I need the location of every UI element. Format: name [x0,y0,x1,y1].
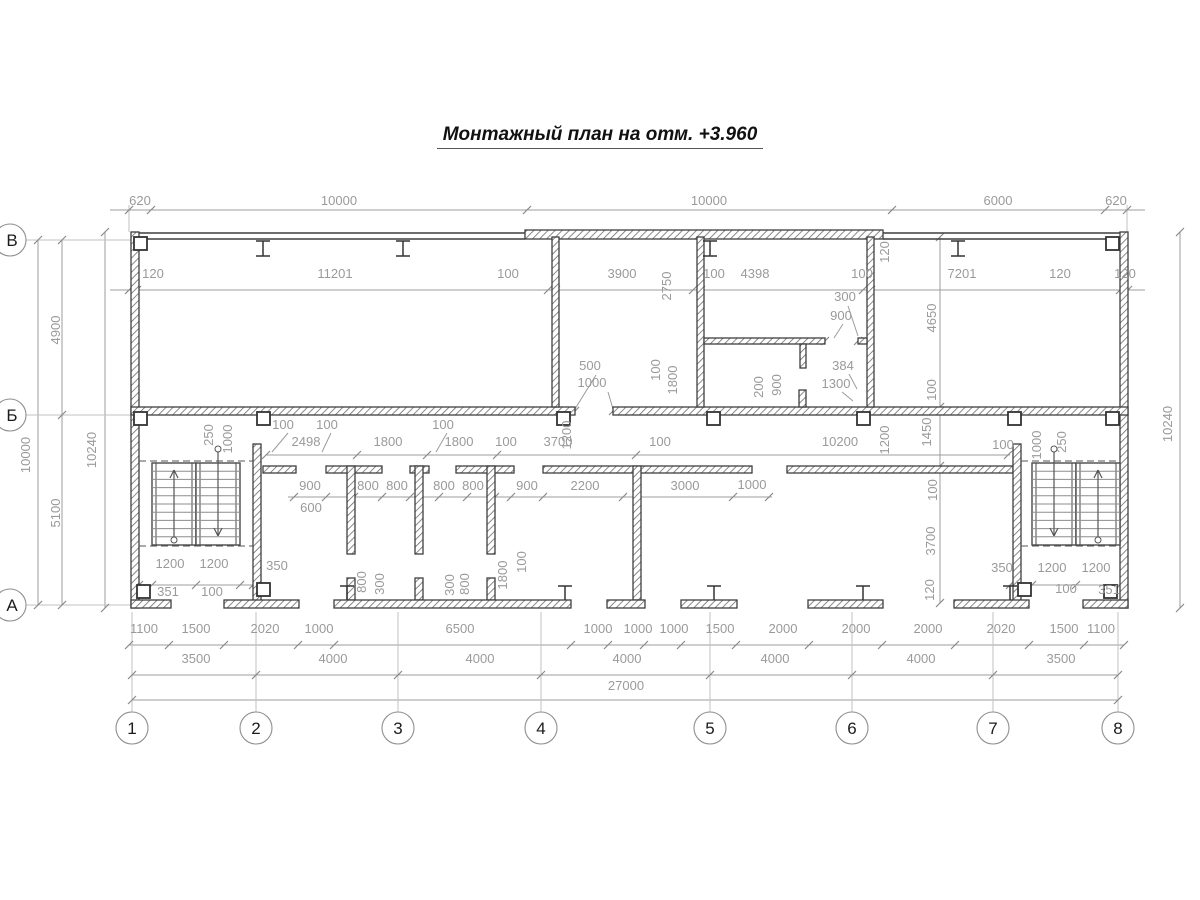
dimension-label: 4398 [741,266,770,281]
wall [487,578,495,600]
dimension-label: 7201 [948,266,977,281]
wall [487,466,495,554]
wall [1013,444,1021,603]
dimension-label: 620 [1105,193,1127,208]
column-square [257,583,270,596]
dimension-label: 1800 [495,561,510,590]
dimension-label: 3900 [608,266,637,281]
dimension-label: 120 [1114,266,1136,281]
dimension-label: 1200 [559,421,574,450]
dimension-label: 1200 [200,556,229,571]
dimension-label: 350 [991,560,1013,575]
dimension-label: 100 [1055,581,1077,596]
wall [415,578,423,600]
column-square [857,412,870,425]
dimension-label: 1450 [919,418,934,447]
leader-line [842,392,853,401]
dimension-label: 1800 [374,434,403,449]
dimension-label: 1100 [1087,621,1115,636]
dimension-label: 6500 [446,621,475,636]
dimension-label: 4000 [761,651,790,666]
drawing-sheet: Монтажный план на отм. +3.960 6201000010… [0,0,1200,900]
wall [1083,600,1128,608]
dimension-label: 1200 [1082,560,1111,575]
leader-line [322,433,331,452]
dimension-label: 4000 [319,651,348,666]
wall [334,600,571,608]
column-square [257,412,270,425]
dimension-label: 300 [834,289,856,304]
dimension-label: 10200 [822,434,858,449]
grid-bubble-label: 6 [847,719,856,738]
wall [633,466,641,600]
dimension-label: 2200 [571,478,600,493]
dimension-label: 1200 [1038,560,1067,575]
dimension-label: 1000 [624,621,653,636]
dimension-label: 2020 [251,621,280,636]
wall [131,600,171,608]
dimension-label: 120 [142,266,164,281]
dimension-label: 5100 [48,499,63,528]
dimension-label: 10000 [18,437,33,473]
leader-line [272,433,288,452]
dimension-label: 600 [300,500,322,515]
dimension-label: 100 [432,417,454,432]
dimension-label: 800 [386,478,408,493]
column-square [134,237,147,250]
dimension-label: 100 [648,359,663,381]
wall [456,466,514,473]
dimension-label: 900 [830,308,852,323]
grid-bubble-label: 3 [393,719,402,738]
dimension-label: 800 [357,478,379,493]
dimension-label: 100 [495,434,517,449]
dimension-label: 1200 [156,556,185,571]
column-square [134,412,147,425]
dimension-label: 10000 [321,193,357,208]
dimension-label: 1000 [738,477,767,492]
dimension-label: 900 [769,374,784,396]
dimension-label: 1000 [660,621,689,636]
dimension-label: 10240 [84,432,99,468]
dimension-label: 1000 [578,375,607,390]
wall [704,338,825,344]
dimension-label: 6000 [984,193,1013,208]
dimension-label: 100 [924,379,939,401]
floor-plan-svg: 6201000010000600062012011201100390010043… [0,0,1200,900]
wall [954,600,1029,608]
dimension-label: 351 [1098,582,1120,597]
wall [607,600,645,608]
dimension-label: 2000 [769,621,798,636]
dimension-label: 800 [354,571,369,593]
dimension-label: 100 [851,266,873,281]
dimension-label: 250 [1054,431,1069,453]
wall [787,466,1013,473]
dimension-label: 1000 [220,425,235,454]
column-square [137,585,150,598]
dimension-label: 4000 [907,651,936,666]
dimension-label: 1000 [305,621,334,636]
dimension-label: 350 [266,558,288,573]
dimension-label: 3500 [182,651,211,666]
dimension-label: 100 [925,479,940,501]
dimension-label: 120 [922,579,937,601]
dimension-label: 1200 [877,426,892,455]
dimension-label: 1500 [706,621,735,636]
dimension-label: 900 [299,478,321,493]
dimension-label: 800 [462,478,484,493]
leader-line [834,324,843,338]
dimension-label: 300 [372,573,387,595]
dimension-label: 100 [514,551,529,573]
wall [1120,232,1128,608]
column-square [1018,583,1031,596]
dimension-label: 200 [751,376,766,398]
dimension-label: 1800 [665,366,680,395]
dimension-label: 10000 [691,193,727,208]
dimension-label: 2020 [987,621,1016,636]
grid-bubble-label: 2 [251,719,260,738]
dimension-label: 384 [832,358,854,373]
grid-bubble-label: 8 [1113,719,1122,738]
dimension-label: 620 [129,193,151,208]
dimension-label: 120 [877,241,892,263]
wall [697,237,704,407]
dimension-label: 100 [649,434,671,449]
dimension-label: 120 [1049,266,1071,281]
dimension-label: 900 [516,478,538,493]
leader-line [608,392,613,409]
dimension-label: 4000 [613,651,642,666]
wall [224,600,299,608]
grid-bubble-label: А [6,596,18,615]
dimension-label: 3500 [1047,651,1076,666]
dimension-label: 11201 [317,266,352,281]
wall [867,237,874,407]
wall [415,466,423,554]
dimension-label: 351 [157,584,179,599]
dimension-label: 27000 [608,678,644,693]
dimension-label: 10240 [1160,406,1175,442]
wall [681,600,737,608]
dimension-label: 1000 [1029,431,1044,460]
wall [799,390,806,407]
wall [543,466,752,473]
grid-bubble-label: Б [6,406,17,425]
dimension-label: 100 [316,417,338,432]
dimension-label: 1000 [584,621,613,636]
dimension-label: 1100 [130,621,158,636]
wall [552,237,559,407]
wall [800,344,806,368]
dimension-label: 2750 [659,272,674,301]
dimension-label: 100 [272,417,294,432]
grid-bubble-label: В [6,231,17,250]
dimension-label: 800 [433,478,455,493]
dimension-label: 2498 [292,434,321,449]
stairs [139,446,1120,546]
wall [131,407,575,415]
grid-bubble-label: 4 [536,719,545,738]
dimension-label: 4900 [48,316,63,345]
dimension-label: 800 [457,573,472,595]
dimension-label: 100 [992,437,1014,452]
grid-bubble-label: 7 [988,719,997,738]
dimension-label: 2000 [842,621,871,636]
dimension-label: 300 [442,574,457,596]
dimension-label: 100 [201,584,223,599]
grid-bubble-label: 5 [705,719,714,738]
dimension-label: 4000 [466,651,495,666]
column-square [707,412,720,425]
dimension-texts: 6201000010000600062012011201100390010043… [18,193,1175,693]
dimension-label: 100 [497,266,519,281]
wall [253,444,261,603]
dimension-label: 3700 [923,527,938,556]
column-square [1008,412,1021,425]
wall [263,466,296,473]
column-square [1106,412,1119,425]
grid-bubble-label: 1 [127,719,136,738]
dimension-label: 1300 [822,376,851,391]
dimension-label: 250 [201,424,216,446]
dimension-label: 1500 [182,621,211,636]
dimension-label: 1500 [1050,621,1079,636]
column-square [1106,237,1119,250]
dimension-label: 2000 [914,621,943,636]
dimension-label: 100 [703,266,725,281]
dimension-label: 500 [579,358,601,373]
dimension-label: 3000 [671,478,700,493]
wall [347,466,355,554]
dimension-label: 4650 [924,304,939,333]
dimension-label: 1800 [445,434,474,449]
wall [858,338,867,344]
wall [808,600,883,608]
